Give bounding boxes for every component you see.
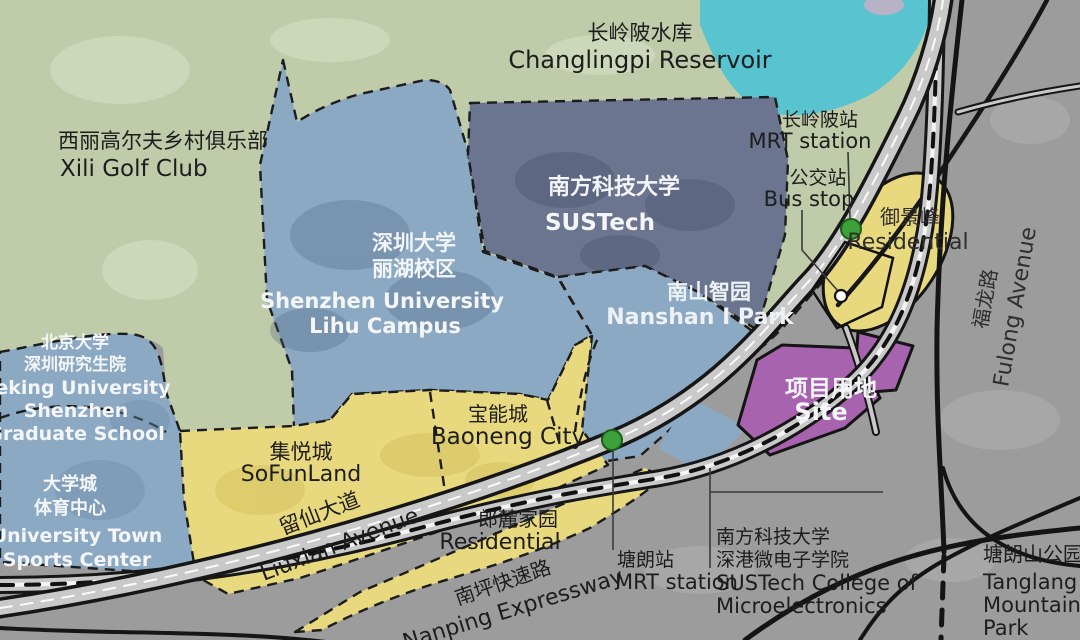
label-yujing-en: Residential bbox=[847, 230, 968, 255]
label-pku-en1: Peking University bbox=[0, 377, 171, 399]
label-sofun-zh: 集悦城 bbox=[270, 440, 333, 464]
label-langlu-en: Residential bbox=[439, 530, 560, 555]
label-golf-en: Xili Golf Club bbox=[60, 156, 208, 182]
label-fulong-en: Fulong Avenue bbox=[989, 225, 1042, 388]
label-bus-en: Bus stop bbox=[764, 187, 855, 211]
label-clp-station-en: MRT station bbox=[749, 129, 872, 153]
label-reservoir-zh: 长岭陂水库 bbox=[588, 21, 693, 45]
label-szu-en2: Lihu Campus bbox=[309, 314, 461, 338]
bus-stop-marker bbox=[835, 290, 847, 302]
label-sports-en2: Sports Center bbox=[3, 549, 152, 571]
label-baoneng-en: Baoneng City bbox=[431, 424, 585, 450]
label-sports-zh2: 体育中心 bbox=[34, 497, 106, 519]
label-pku-en2: Shenzhen bbox=[24, 400, 129, 422]
label-sports-en1: University Town bbox=[0, 525, 162, 547]
label-nanshan-en: Nanshan I Park bbox=[606, 305, 795, 330]
label-pku-en3: Graduate School bbox=[0, 423, 165, 445]
label-micro-zh2: 深港微电子学院 bbox=[716, 549, 849, 571]
label-golf-zh: 西丽高尔夫乡村俱乐部 bbox=[58, 129, 268, 153]
label-reservoir-en: Changlingpi Reservoir bbox=[508, 46, 771, 74]
label-micro-en1: SUSTech College of bbox=[716, 571, 918, 595]
label-sofun-en: SoFunLand bbox=[241, 462, 361, 487]
mrt-station-marker-tanglang bbox=[602, 430, 622, 450]
label-micro-en2: Microelectronics bbox=[716, 594, 887, 618]
label-sports-zh1: 大学城 bbox=[43, 473, 97, 495]
label-micro-zh1: 南方科技大学 bbox=[716, 526, 830, 548]
label-pku-zh2: 深圳研究生院 bbox=[24, 354, 126, 375]
road-fulong-dashed bbox=[941, 556, 944, 640]
label-tanglangpark-en2: Mountain bbox=[983, 593, 1080, 617]
planning-map: 长岭陂水库 Changlingpi Reservoir 西丽高尔夫乡村俱乐部 X… bbox=[0, 0, 1080, 640]
label-pku-zh1: 北京大学 bbox=[41, 332, 109, 353]
label-szu-en1: Shenzhen University bbox=[260, 289, 504, 313]
label-langlu-zh: 郎麓家园 bbox=[478, 507, 558, 531]
label-tanglangpark-zh: 塘朗山公园 bbox=[983, 542, 1080, 566]
label-sustech-zh: 南方科技大学 bbox=[548, 174, 680, 200]
label-baoneng-zh: 宝能城 bbox=[468, 402, 528, 426]
road-nanping-extra bbox=[0, 628, 380, 640]
label-szu-zh2: 丽湖校区 bbox=[372, 257, 456, 281]
label-yujing-zh: 御景峰 bbox=[880, 205, 940, 229]
label-clp-station-zh: 长岭陂站 bbox=[782, 109, 858, 131]
label-sustech-en: SUSTech bbox=[545, 210, 655, 236]
label-tanglangpark-en1: Tanglang bbox=[982, 570, 1077, 594]
label-tanglangpark-en3: Park bbox=[983, 616, 1029, 640]
label-tl-station-zh: 塘朗站 bbox=[617, 549, 674, 571]
label-nanshan-zh: 南山智园 bbox=[667, 280, 751, 304]
label-bus-zh: 公交站 bbox=[789, 167, 846, 189]
label-szu-zh1: 深圳大学 bbox=[372, 231, 456, 255]
label-fulong-zh: 福龙路 bbox=[968, 267, 1002, 330]
label-site-en: Site bbox=[794, 398, 847, 426]
